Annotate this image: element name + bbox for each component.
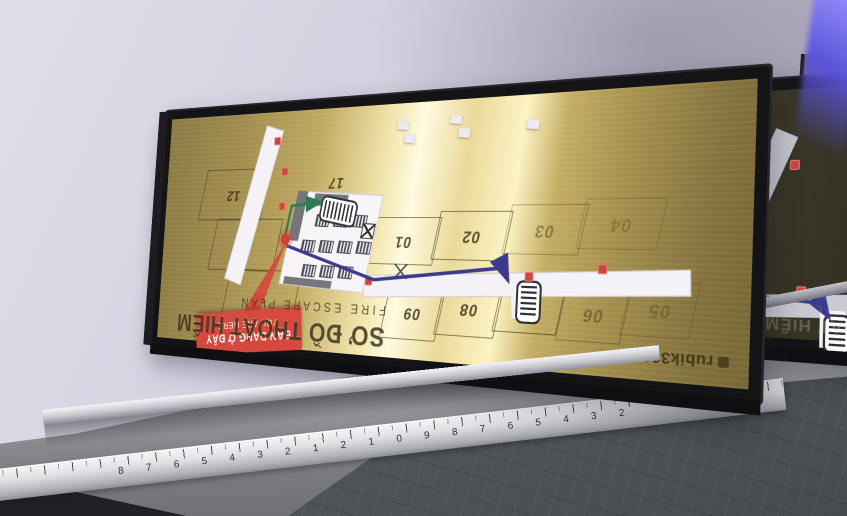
escape-plan-sign-main: 12 11 10 17 01 02 03 04 09 08 07 06 05 (150, 66, 770, 403)
ruler-number: 1 (357, 435, 386, 449)
ruler-number: 7 (468, 422, 497, 436)
ruler-number: 9 (412, 429, 441, 443)
workshop-photo: 8 7 6 5 4 3 2 1 2 1 0 9 8 7 6 5 4 3 2 (0, 0, 847, 516)
you-are-here-dot (280, 233, 290, 245)
route-navy (285, 246, 510, 286)
ruler-number: 3 (579, 409, 608, 423)
ruler-number: 1 (301, 442, 330, 456)
sign-main-face: 12 11 10 17 01 02 03 04 09 08 07 06 05 (150, 66, 770, 403)
ruler-number: 7 (134, 461, 163, 475)
ruler-number: 8 (440, 426, 469, 440)
ruler-number: 4 (218, 451, 247, 465)
ruler-number: 2 (607, 406, 636, 420)
ruler-number: 2 (273, 445, 302, 459)
ruler-number: 5 (524, 416, 553, 430)
route-green (286, 202, 322, 234)
ruler-number: 5 (190, 454, 219, 468)
ruler-number: 3 (246, 448, 275, 462)
ruler-number: 6 (496, 419, 525, 433)
ruler-number: 8 (106, 464, 135, 478)
ruler-number: 0 (385, 432, 414, 446)
rubik360-logo-icon (718, 357, 729, 369)
ruler-number: 6 (162, 458, 191, 472)
ruler-number: 2 (329, 438, 358, 452)
ruler-number: 4 (552, 413, 581, 427)
